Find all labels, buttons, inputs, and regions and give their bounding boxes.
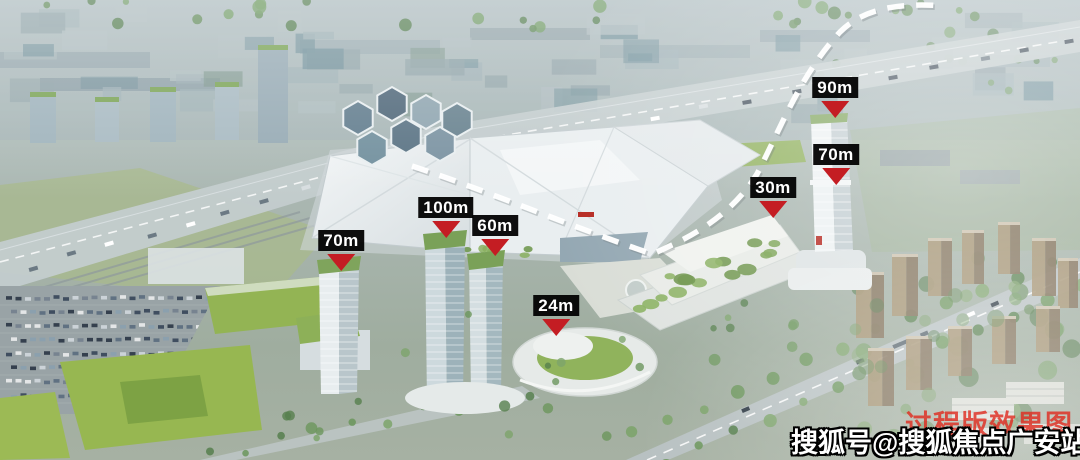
credit-text: 搜狐号@搜狐焦点广安站 — [791, 421, 1080, 460]
aerial-scene — [0, 0, 1080, 460]
aerial-rendering: 90m 70m 30m 100m 60m 70m 24m 过程版效果图 搜狐号@… — [0, 0, 1080, 460]
tower-100m — [423, 230, 467, 402]
